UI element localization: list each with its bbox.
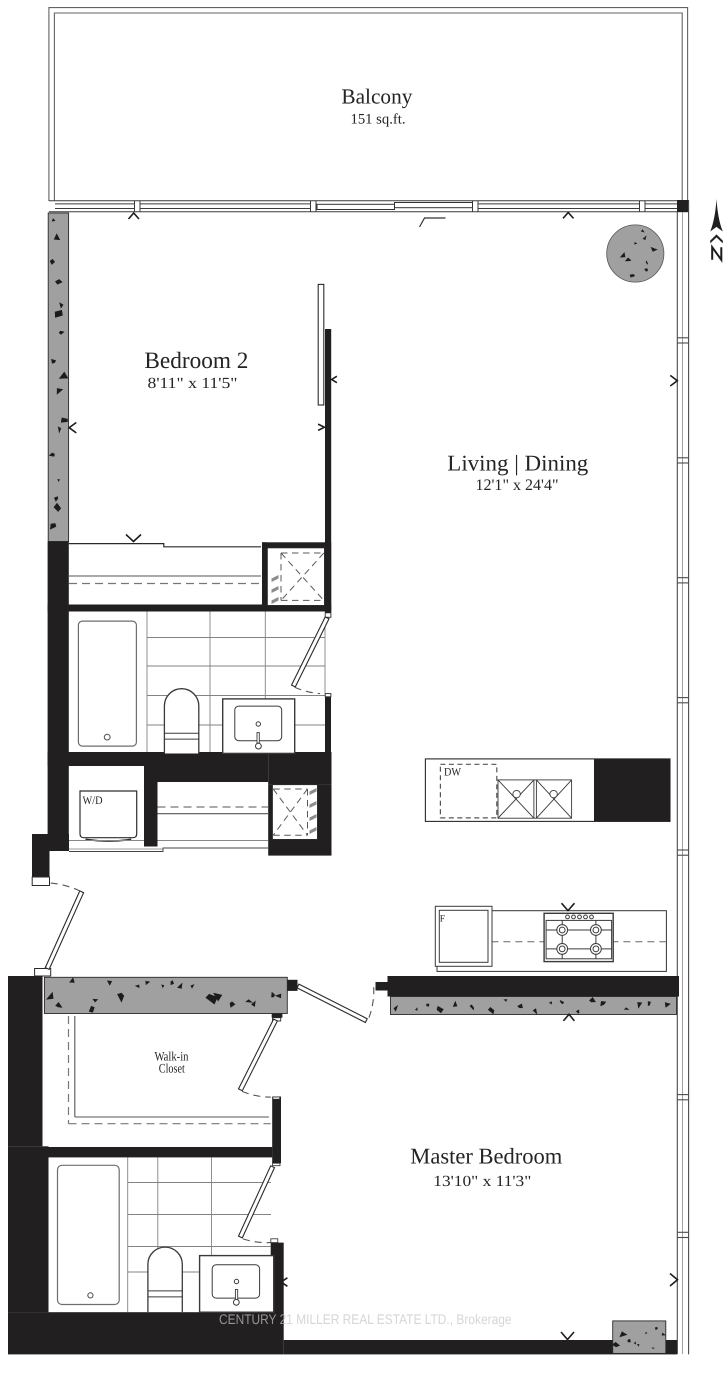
svg-text:151 sq.ft.: 151 sq.ft. <box>351 112 406 128</box>
svg-text:DW: DW <box>444 767 461 779</box>
svg-text:12'1" x 24'4": 12'1" x 24'4" <box>476 477 559 494</box>
svg-text:W/D: W/D <box>83 795 103 807</box>
svg-text:Living | Dining: Living | Dining <box>447 450 588 475</box>
svg-text:Closet: Closet <box>159 1061 185 1076</box>
svg-text:13'10" x 11'3": 13'10" x 11'3" <box>433 1173 531 1190</box>
svg-text:Bedroom 2: Bedroom 2 <box>144 348 248 374</box>
svg-text:F: F <box>440 915 445 925</box>
svg-text:Balcony: Balcony <box>341 84 412 108</box>
svg-text:Master Bedroom: Master Bedroom <box>410 1144 562 1169</box>
svg-text:8'11" x 11'5": 8'11" x 11'5" <box>148 375 238 392</box>
